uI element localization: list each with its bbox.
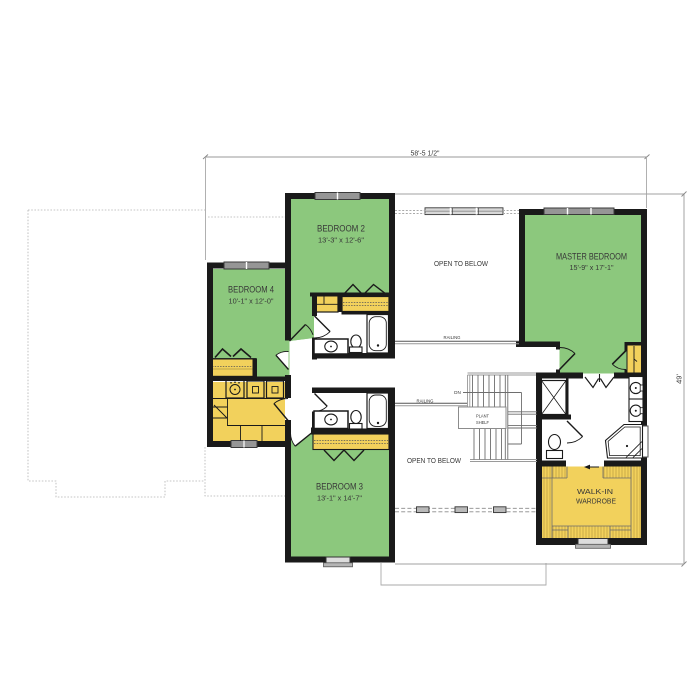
svg-text:15'-9" x 17'-1": 15'-9" x 17'-1" [570,265,615,272]
svg-text:WALK-IN: WALK-IN [577,487,613,496]
svg-text:RAILING: RAILING [417,399,435,404]
svg-text:PLANT: PLANT [476,414,489,419]
svg-text:13'-3" x 12'-6": 13'-3" x 12'-6" [318,238,365,245]
svg-text:RAILING: RAILING [444,335,462,340]
svg-text:SHELF: SHELF [476,420,489,425]
svg-text:OPEN TO BELOW: OPEN TO BELOW [407,456,462,465]
svg-text:MASTER BEDROOM: MASTER BEDROOM [556,252,627,262]
svg-text:13'-1" x 14'-7": 13'-1" x 14'-7" [317,496,363,503]
svg-text:49': 49' [675,374,684,384]
svg-text:WARDROBE: WARDROBE [576,497,616,506]
svg-text:DN: DN [454,390,461,395]
svg-text:BEDROOM 2: BEDROOM 2 [317,224,365,234]
svg-text:10'-1" x 12'-0": 10'-1" x 12'-0" [229,299,275,306]
svg-text:BEDROOM 3: BEDROOM 3 [316,482,363,492]
svg-text:BEDROOM 4: BEDROOM 4 [228,285,274,295]
svg-text:OPEN TO BELOW: OPEN TO BELOW [434,259,489,268]
svg-text:58'-5 1/2": 58'-5 1/2" [411,151,440,158]
